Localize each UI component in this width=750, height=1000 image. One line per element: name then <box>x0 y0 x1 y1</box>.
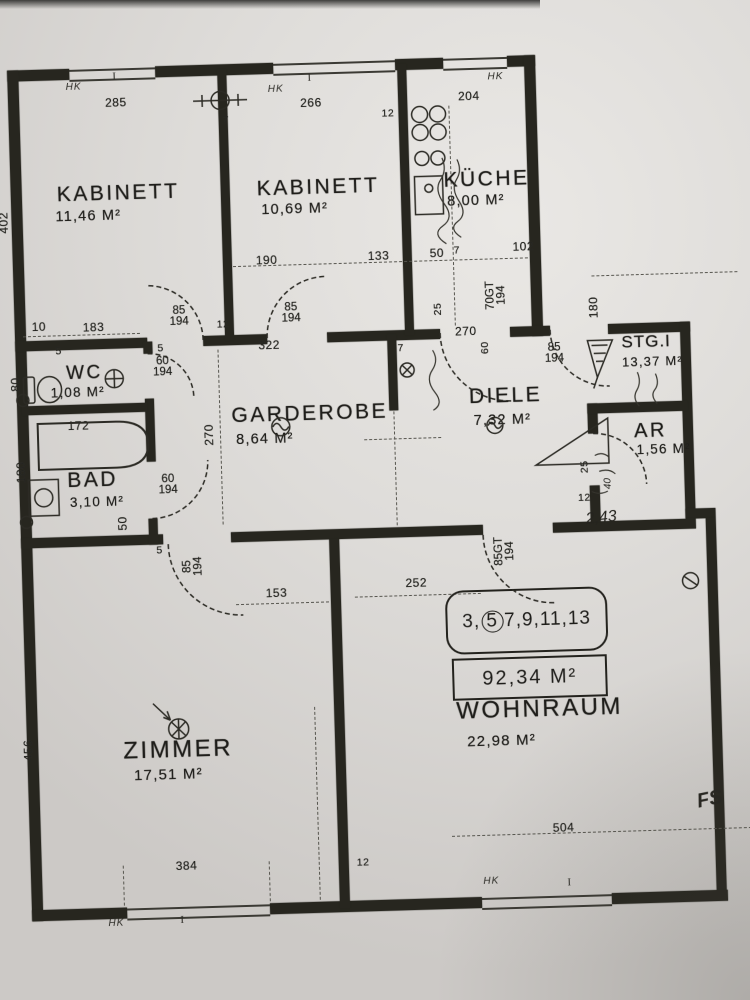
bad-sink <box>28 479 59 516</box>
kitchen-sink-basin <box>431 151 445 165</box>
floorplan: KABINETT 11,46 M² KABINETT 10,69 M² KÜCH… <box>0 0 750 1000</box>
door-arc-bad <box>151 460 210 519</box>
door-arc-wc <box>148 352 194 398</box>
kitchen-sink-basin <box>415 151 429 165</box>
stove-burner <box>412 124 428 140</box>
wall-axis-symbol <box>402 365 412 375</box>
handwriting-scribble <box>634 372 640 406</box>
handwriting-scribble <box>652 374 658 404</box>
lamp-arrow <box>153 703 170 720</box>
handwriting-scribble <box>591 453 616 493</box>
window-axis-symbol <box>193 94 247 108</box>
ceiling-lamp-zimmer <box>171 719 186 739</box>
scanned-floorplan-photo: KABINETT 11,46 M² KABINETT 10,69 M² KÜCH… <box>0 0 750 1000</box>
outlet-symbol-wc <box>17 394 29 406</box>
bad-sink <box>35 489 54 508</box>
stove-burner <box>411 106 427 122</box>
door-arc-kabinett1 <box>146 284 204 342</box>
door-arc-kueche <box>440 331 512 403</box>
door-arc-kabinett2 <box>265 276 327 338</box>
handwriting-scribble <box>452 159 464 237</box>
handwriting-scribble <box>429 350 440 410</box>
door-arc-zimmer <box>168 542 243 617</box>
entrance-triangle <box>535 418 609 465</box>
door-arc-wohnraum <box>483 533 555 605</box>
bathtub <box>38 421 149 470</box>
ceiling-outlet-garderobe <box>273 423 289 430</box>
stove-burner <box>430 124 446 140</box>
kitchen-counter-drain <box>425 184 433 192</box>
ceiling-outlet-diele <box>488 422 502 428</box>
door-arc-ar <box>593 432 647 486</box>
plan-symbols <box>0 0 750 1000</box>
stove-burner <box>429 106 445 122</box>
outlet-symbol-bad <box>20 516 32 528</box>
door-arc-stiege <box>550 328 610 388</box>
toilet-bowl <box>37 376 62 403</box>
handwriting-scribble <box>436 158 450 244</box>
ceiling-outlet-wohnraum <box>683 575 697 585</box>
